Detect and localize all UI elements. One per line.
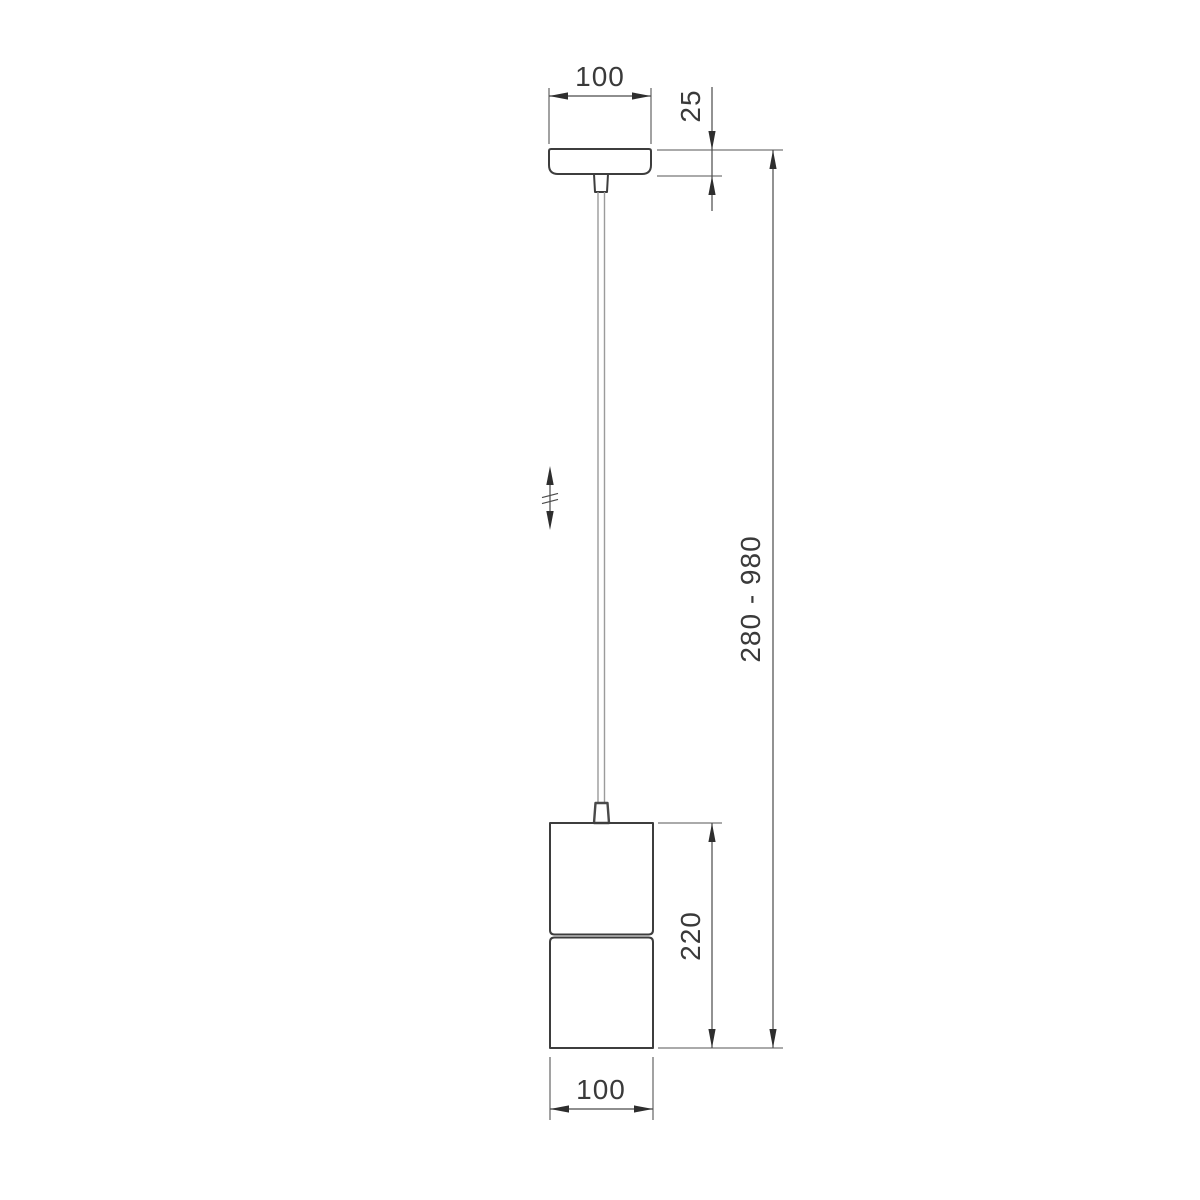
arrowhead-down-icon (708, 131, 715, 150)
arrowhead-up-icon (769, 150, 776, 169)
arrowhead-up-icon (708, 176, 715, 195)
dimension-suspension-range: 280 - 980 (735, 150, 777, 1048)
arrowhead-up-icon (546, 466, 553, 485)
lamp-body-lower-section (550, 938, 653, 1049)
dimension-label: 25 (675, 89, 706, 122)
ceiling-canopy (549, 149, 651, 174)
arrowhead-right-icon (634, 1105, 653, 1112)
dimension-label: 100 (575, 61, 625, 92)
dimension-canopy-height: 25 (657, 87, 783, 211)
dimension-label: 280 - 980 (735, 535, 766, 662)
dimension-canopy-width: 100 (549, 61, 651, 144)
drawing-canvas: 100 25 280 - 980 220 (0, 0, 1200, 1200)
arrowhead-right-icon (632, 92, 651, 99)
dimension-label: 100 (576, 1074, 626, 1105)
arrowhead-down-icon (546, 511, 553, 530)
arrowhead-left-icon (549, 92, 568, 99)
arrowhead-down-icon (769, 1029, 776, 1048)
cord-grip-top (594, 174, 608, 192)
lamp-object (549, 149, 653, 1048)
lamp-body-upper-section (550, 823, 653, 935)
pendant-lamp-dimension-drawing: 100 25 280 - 980 220 (0, 0, 1200, 1200)
height-adjust-arrow-icon (542, 466, 558, 530)
arrowhead-left-icon (550, 1105, 569, 1112)
arrowhead-up-icon (708, 823, 715, 842)
cord-grip-bottom (594, 803, 609, 823)
dimension-body-height: 220 (658, 823, 783, 1048)
dimension-label: 220 (675, 911, 706, 961)
arrowhead-down-icon (708, 1029, 715, 1048)
dimension-body-width: 100 (550, 1057, 653, 1120)
